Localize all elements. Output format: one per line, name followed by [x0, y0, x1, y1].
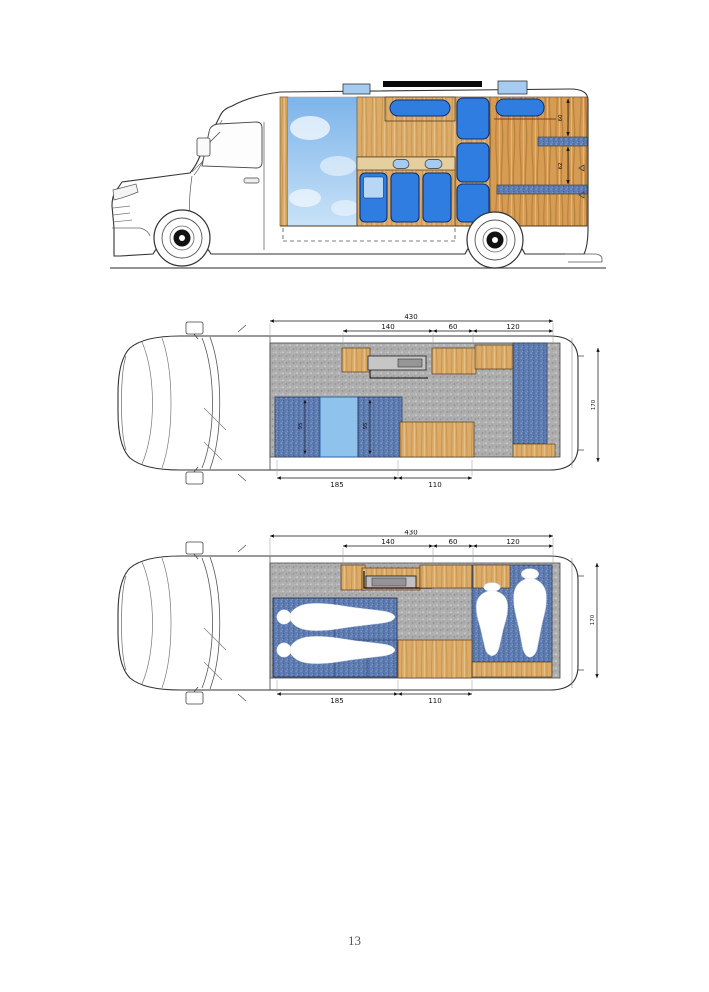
cabinet-block-mid — [420, 565, 472, 588]
dim-width-label: 170 — [590, 614, 596, 625]
door-window — [202, 122, 262, 168]
rear-bumper — [565, 254, 602, 262]
kitchen-knob-right — [425, 160, 442, 169]
figure-van-side-view: 60 62 — [110, 78, 610, 278]
roof-vent-rear — [498, 81, 527, 94]
dim-seg1-label: 140 — [381, 323, 394, 331]
dim-seg1-label: 140 — [381, 538, 394, 546]
dim-shelf-lower-label: 62 — [558, 163, 564, 170]
wood-panel-rear — [513, 444, 555, 457]
dim-bench-right-label: 95 — [363, 422, 369, 429]
upholstered-shelf-lower — [497, 185, 587, 194]
dim-width-label: 170 — [591, 399, 597, 410]
tall-cabinet-door-mid — [457, 143, 489, 182]
kitchen-unit — [357, 157, 455, 226]
figure-bed-plan: 430 140 60 120 185 110 170 — [110, 530, 615, 720]
interior-floor-plan: 95 95 — [270, 343, 560, 457]
upholstered-shelf-upper — [538, 137, 587, 146]
dim-total-label: 430 — [404, 313, 417, 321]
kitchen-door-mid — [391, 173, 419, 222]
dim-bench-left-label: 95 — [298, 422, 304, 429]
stowed-bed-cushions — [513, 343, 547, 444]
dim-shelf-upper-label: 60 — [558, 114, 564, 121]
side-mirror — [197, 138, 210, 156]
roof-vent-front — [343, 84, 370, 94]
wall-edge-panel — [280, 97, 288, 226]
rear-bed-wood-edge — [472, 662, 552, 677]
cabinet-block — [342, 348, 370, 372]
rear-wheel — [467, 212, 523, 268]
dim-total-label: 430 — [404, 530, 417, 537]
dim-bottom2-label: 110 — [428, 697, 441, 705]
dim-bottom1-label: 185 — [330, 697, 343, 705]
dim-seg3-label: 120 — [506, 323, 519, 331]
dinette-table — [320, 397, 358, 457]
dim-bottom1-label: 185 — [330, 481, 343, 489]
kitchen-door-window — [364, 177, 384, 198]
dim-seg2-label: 60 — [449, 323, 458, 331]
dim-seg2-label: 60 — [449, 538, 458, 546]
sky-opening — [288, 97, 359, 226]
kitchen-door-right — [423, 173, 451, 222]
wood-floor-panel — [400, 422, 474, 457]
rear-locker-door — [496, 99, 544, 116]
roof-rack-bar — [383, 81, 482, 87]
dim-seg3-label: 120 — [506, 538, 519, 546]
figure-floor-plan: 95 95 430 140 60 120 185 110 170 — [110, 312, 615, 497]
cabinet-block-rear — [475, 345, 513, 369]
page-number: 13 — [0, 933, 709, 949]
interior-bed-plan — [270, 563, 560, 678]
kitchen-knob-left — [393, 160, 409, 169]
door-handle — [244, 178, 259, 183]
interior-side-view: 60 62 — [280, 97, 587, 241]
tall-cabinet-door-top — [457, 98, 489, 139]
dim-bottom2-label: 110 — [428, 481, 441, 489]
front-wheel — [154, 210, 210, 266]
cabinet-block-mid — [432, 348, 476, 374]
cabinet-block — [341, 565, 365, 590]
wood-floor-panel — [398, 640, 472, 678]
document-page: 60 62 — [0, 0, 709, 992]
overhead-locker-door — [390, 100, 450, 116]
